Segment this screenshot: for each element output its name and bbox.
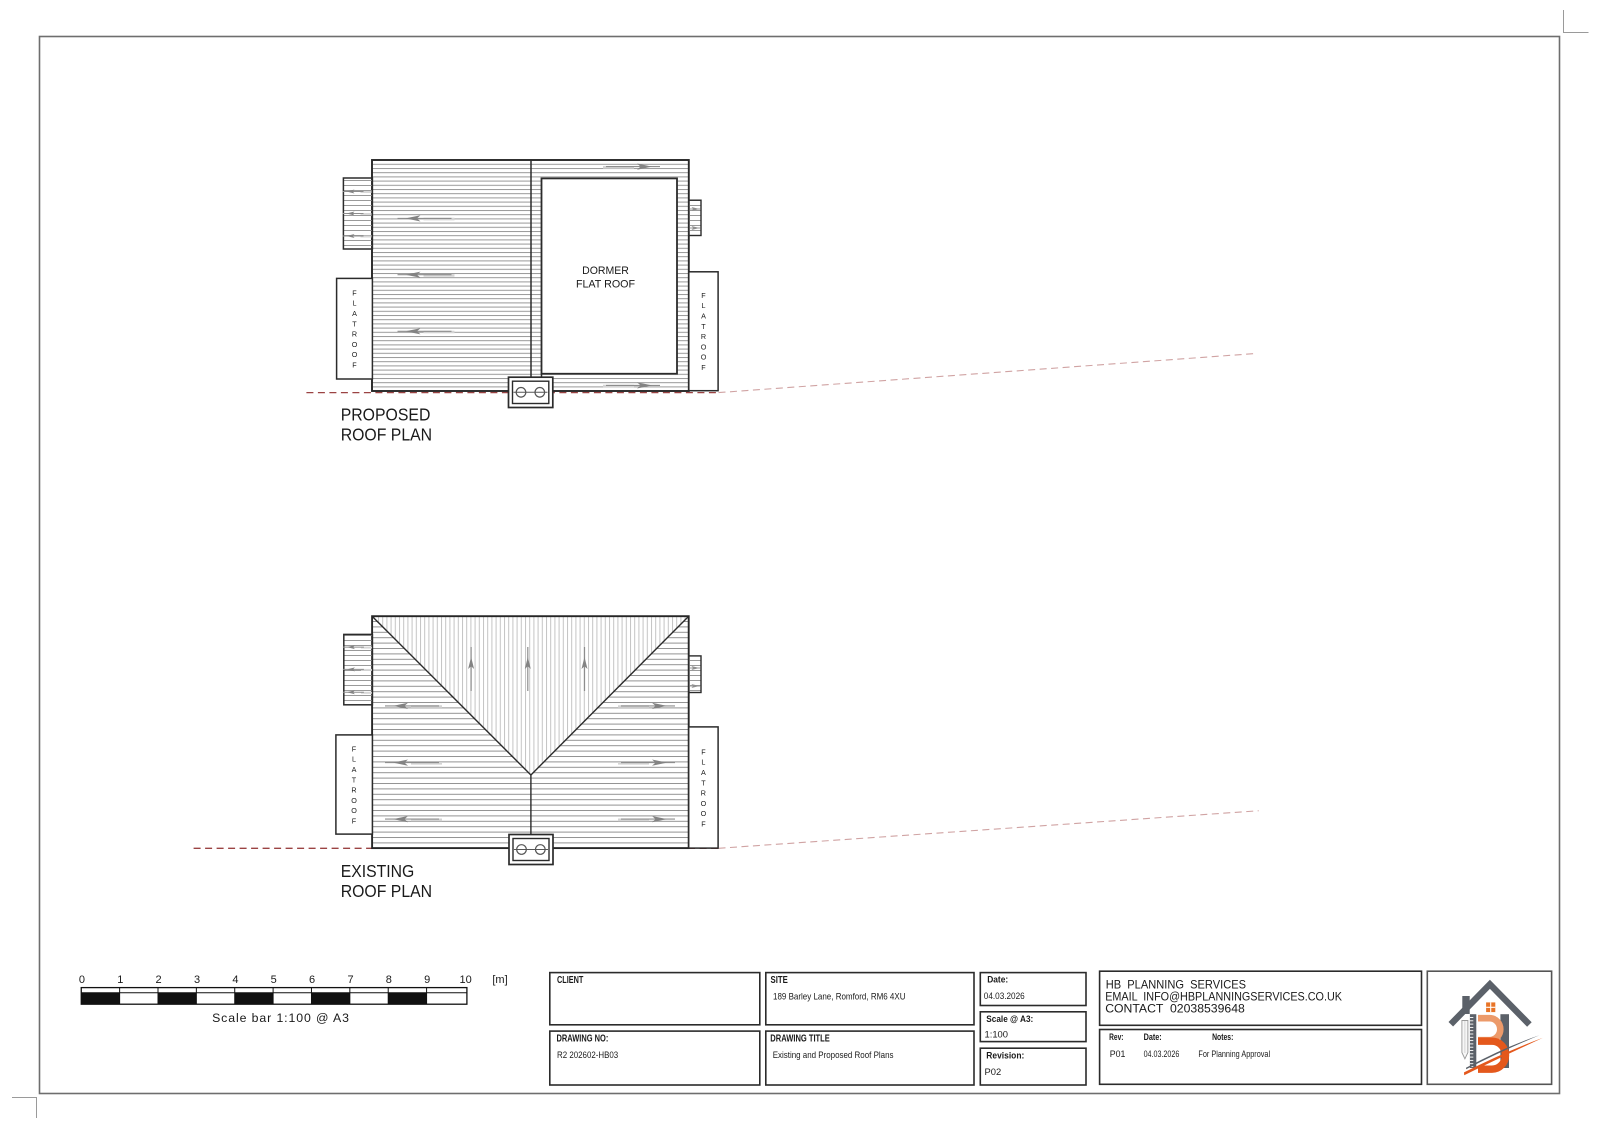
svg-text:189 Barley Lane, Romford, RM6: 189 Barley Lane, Romford, RM6 4XU bbox=[773, 991, 906, 1002]
svg-text:O: O bbox=[352, 340, 358, 349]
svg-text:L: L bbox=[353, 299, 357, 308]
svg-text:Revision:: Revision: bbox=[986, 1050, 1024, 1061]
svg-text:Existing and Proposed Roof Pla: Existing and Proposed Roof Plans bbox=[773, 1049, 894, 1060]
svg-text:Notes:: Notes: bbox=[1212, 1032, 1233, 1042]
svg-text:F: F bbox=[352, 817, 357, 826]
svg-text:F: F bbox=[352, 288, 357, 297]
svg-text:7: 7 bbox=[347, 974, 353, 986]
svg-text:O: O bbox=[701, 353, 707, 362]
svg-text:3: 3 bbox=[194, 974, 200, 986]
svg-text:T: T bbox=[701, 778, 706, 787]
svg-text:1:100: 1:100 bbox=[985, 1028, 1008, 1039]
svg-text:9: 9 bbox=[424, 974, 430, 986]
svg-text:F: F bbox=[701, 747, 706, 756]
svg-text:PROPOSED: PROPOSED bbox=[341, 405, 431, 425]
svg-text:04.03.2026: 04.03.2026 bbox=[1144, 1049, 1180, 1059]
svg-text:EXISTING: EXISTING bbox=[341, 861, 415, 881]
svg-text:A: A bbox=[352, 765, 357, 774]
svg-text:R: R bbox=[352, 330, 357, 339]
svg-text:8: 8 bbox=[386, 974, 392, 986]
svg-text:O: O bbox=[701, 342, 707, 351]
svg-text:T: T bbox=[701, 322, 706, 331]
svg-text:0: 0 bbox=[79, 974, 85, 986]
svg-text:O: O bbox=[701, 799, 707, 808]
svg-text:5: 5 bbox=[271, 974, 277, 986]
svg-text:ROOF PLAN: ROOF PLAN bbox=[341, 425, 432, 445]
svg-text:ROOF PLAN: ROOF PLAN bbox=[341, 881, 432, 901]
svg-text:P01: P01 bbox=[1110, 1049, 1126, 1059]
svg-text:L: L bbox=[352, 755, 356, 764]
svg-text:Rev:: Rev: bbox=[1109, 1032, 1123, 1042]
svg-text:F: F bbox=[352, 744, 357, 753]
svg-text:SITE: SITE bbox=[771, 975, 789, 986]
svg-text:O: O bbox=[701, 809, 707, 818]
svg-text:F: F bbox=[701, 291, 706, 300]
svg-text:A: A bbox=[352, 309, 357, 318]
svg-text:R: R bbox=[701, 332, 706, 341]
svg-text:2: 2 bbox=[156, 974, 162, 986]
svg-text:04.03.2026: 04.03.2026 bbox=[984, 990, 1025, 1001]
svg-text:10: 10 bbox=[459, 974, 471, 986]
svg-text:Date:: Date: bbox=[987, 974, 1008, 985]
svg-text:R2 202602-HB03: R2 202602-HB03 bbox=[557, 1049, 618, 1060]
svg-text:A: A bbox=[701, 768, 706, 777]
svg-text:[m]: [m] bbox=[492, 974, 507, 986]
svg-text:L: L bbox=[702, 301, 706, 310]
svg-text:DORMER: DORMER bbox=[582, 265, 629, 277]
svg-text:F: F bbox=[352, 361, 357, 370]
svg-text:O: O bbox=[351, 806, 357, 815]
svg-text:DRAWING NO:: DRAWING NO: bbox=[557, 1033, 609, 1044]
svg-text:Scale @ A3:: Scale @ A3: bbox=[986, 1013, 1033, 1024]
svg-text:F: F bbox=[701, 363, 706, 372]
svg-text:4: 4 bbox=[232, 974, 238, 986]
svg-text:F: F bbox=[701, 820, 706, 829]
svg-text:L: L bbox=[701, 758, 705, 767]
svg-text:A: A bbox=[701, 312, 706, 321]
svg-text:T: T bbox=[352, 775, 357, 784]
svg-text:CONTACT 02038539648: CONTACT 02038539648 bbox=[1105, 1001, 1245, 1015]
svg-text:O: O bbox=[351, 796, 357, 805]
svg-text:For Planning Approval: For Planning Approval bbox=[1198, 1049, 1270, 1059]
svg-text:O: O bbox=[352, 350, 358, 359]
svg-text:CLIENT: CLIENT bbox=[557, 975, 583, 986]
svg-text:R: R bbox=[701, 789, 706, 798]
svg-text:FLAT ROOF: FLAT ROOF bbox=[576, 278, 635, 290]
svg-text:Date:: Date: bbox=[1144, 1032, 1162, 1042]
svg-text:T: T bbox=[352, 319, 357, 328]
svg-text:6: 6 bbox=[309, 974, 315, 986]
svg-text:Scale bar 1:100 @ A3: Scale bar 1:100 @ A3 bbox=[212, 1011, 350, 1025]
svg-text:R: R bbox=[351, 786, 356, 795]
svg-text:1: 1 bbox=[117, 974, 123, 986]
svg-text:DRAWING TITLE: DRAWING TITLE bbox=[770, 1033, 830, 1044]
svg-text:P02: P02 bbox=[985, 1066, 1002, 1077]
